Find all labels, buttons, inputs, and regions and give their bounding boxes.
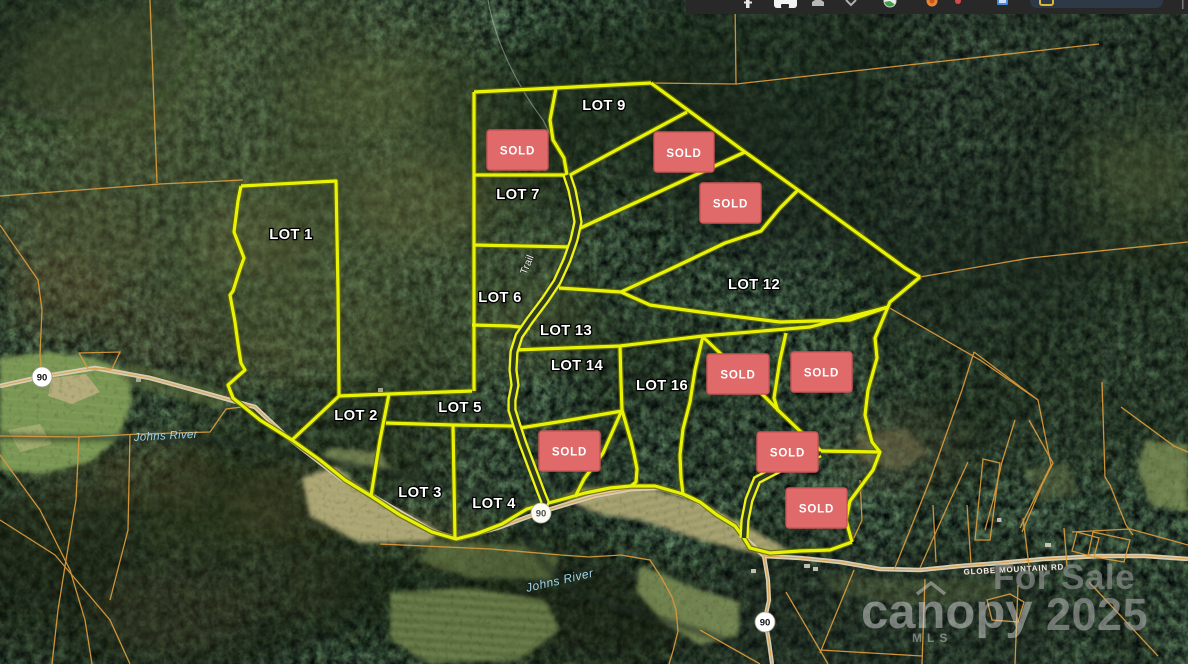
svg-text:LOT 13: LOT 13 [540, 323, 592, 339]
svg-text:LOT 5: LOT 5 [438, 400, 481, 416]
svg-text:SOLD: SOLD [666, 148, 701, 160]
svg-text:SOLD: SOLD [770, 448, 805, 460]
svg-text:LOT 16: LOT 16 [636, 378, 688, 394]
svg-text:LOT 9: LOT 9 [582, 98, 625, 114]
svg-text:90: 90 [37, 373, 48, 384]
svg-text:2025: 2025 [1046, 589, 1148, 640]
svg-text:SOLD: SOLD [500, 146, 535, 158]
svg-text:LOT 3: LOT 3 [398, 485, 441, 501]
svg-text:LOT 7: LOT 7 [496, 187, 539, 203]
svg-text:LOT 4: LOT 4 [472, 496, 516, 512]
svg-text:SOLD: SOLD [799, 504, 834, 516]
svg-text:LOT 2: LOT 2 [334, 408, 377, 424]
svg-text:SOLD: SOLD [552, 447, 587, 459]
svg-text:SOLD: SOLD [804, 368, 839, 380]
svg-text:90: 90 [760, 618, 771, 629]
svg-text:LOT 6: LOT 6 [478, 290, 521, 306]
svg-text:SOLD: SOLD [713, 199, 748, 211]
svg-text:90: 90 [536, 509, 547, 520]
svg-text:LOT 14: LOT 14 [551, 358, 603, 374]
svg-text:MLS: MLS [912, 631, 952, 645]
svg-text:LOT 1: LOT 1 [269, 227, 312, 243]
svg-text:LOT 12: LOT 12 [728, 277, 780, 293]
svg-text:SOLD: SOLD [720, 370, 755, 382]
